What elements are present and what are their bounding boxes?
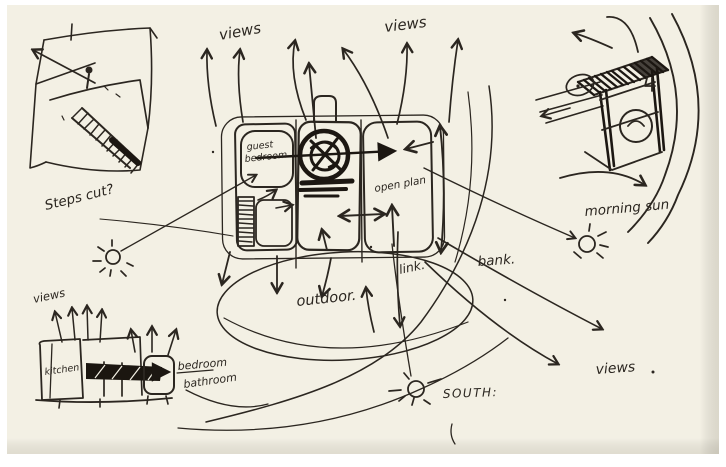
scanned-sketch-page: Steps cut? views views [0, 0, 726, 467]
south-label: SOUTH: [443, 385, 499, 401]
bank-label: bank. [477, 251, 516, 270]
views-bottom-right-label: views [595, 359, 636, 378]
sketch-canvas: Steps cut? views views [0, 0, 726, 467]
